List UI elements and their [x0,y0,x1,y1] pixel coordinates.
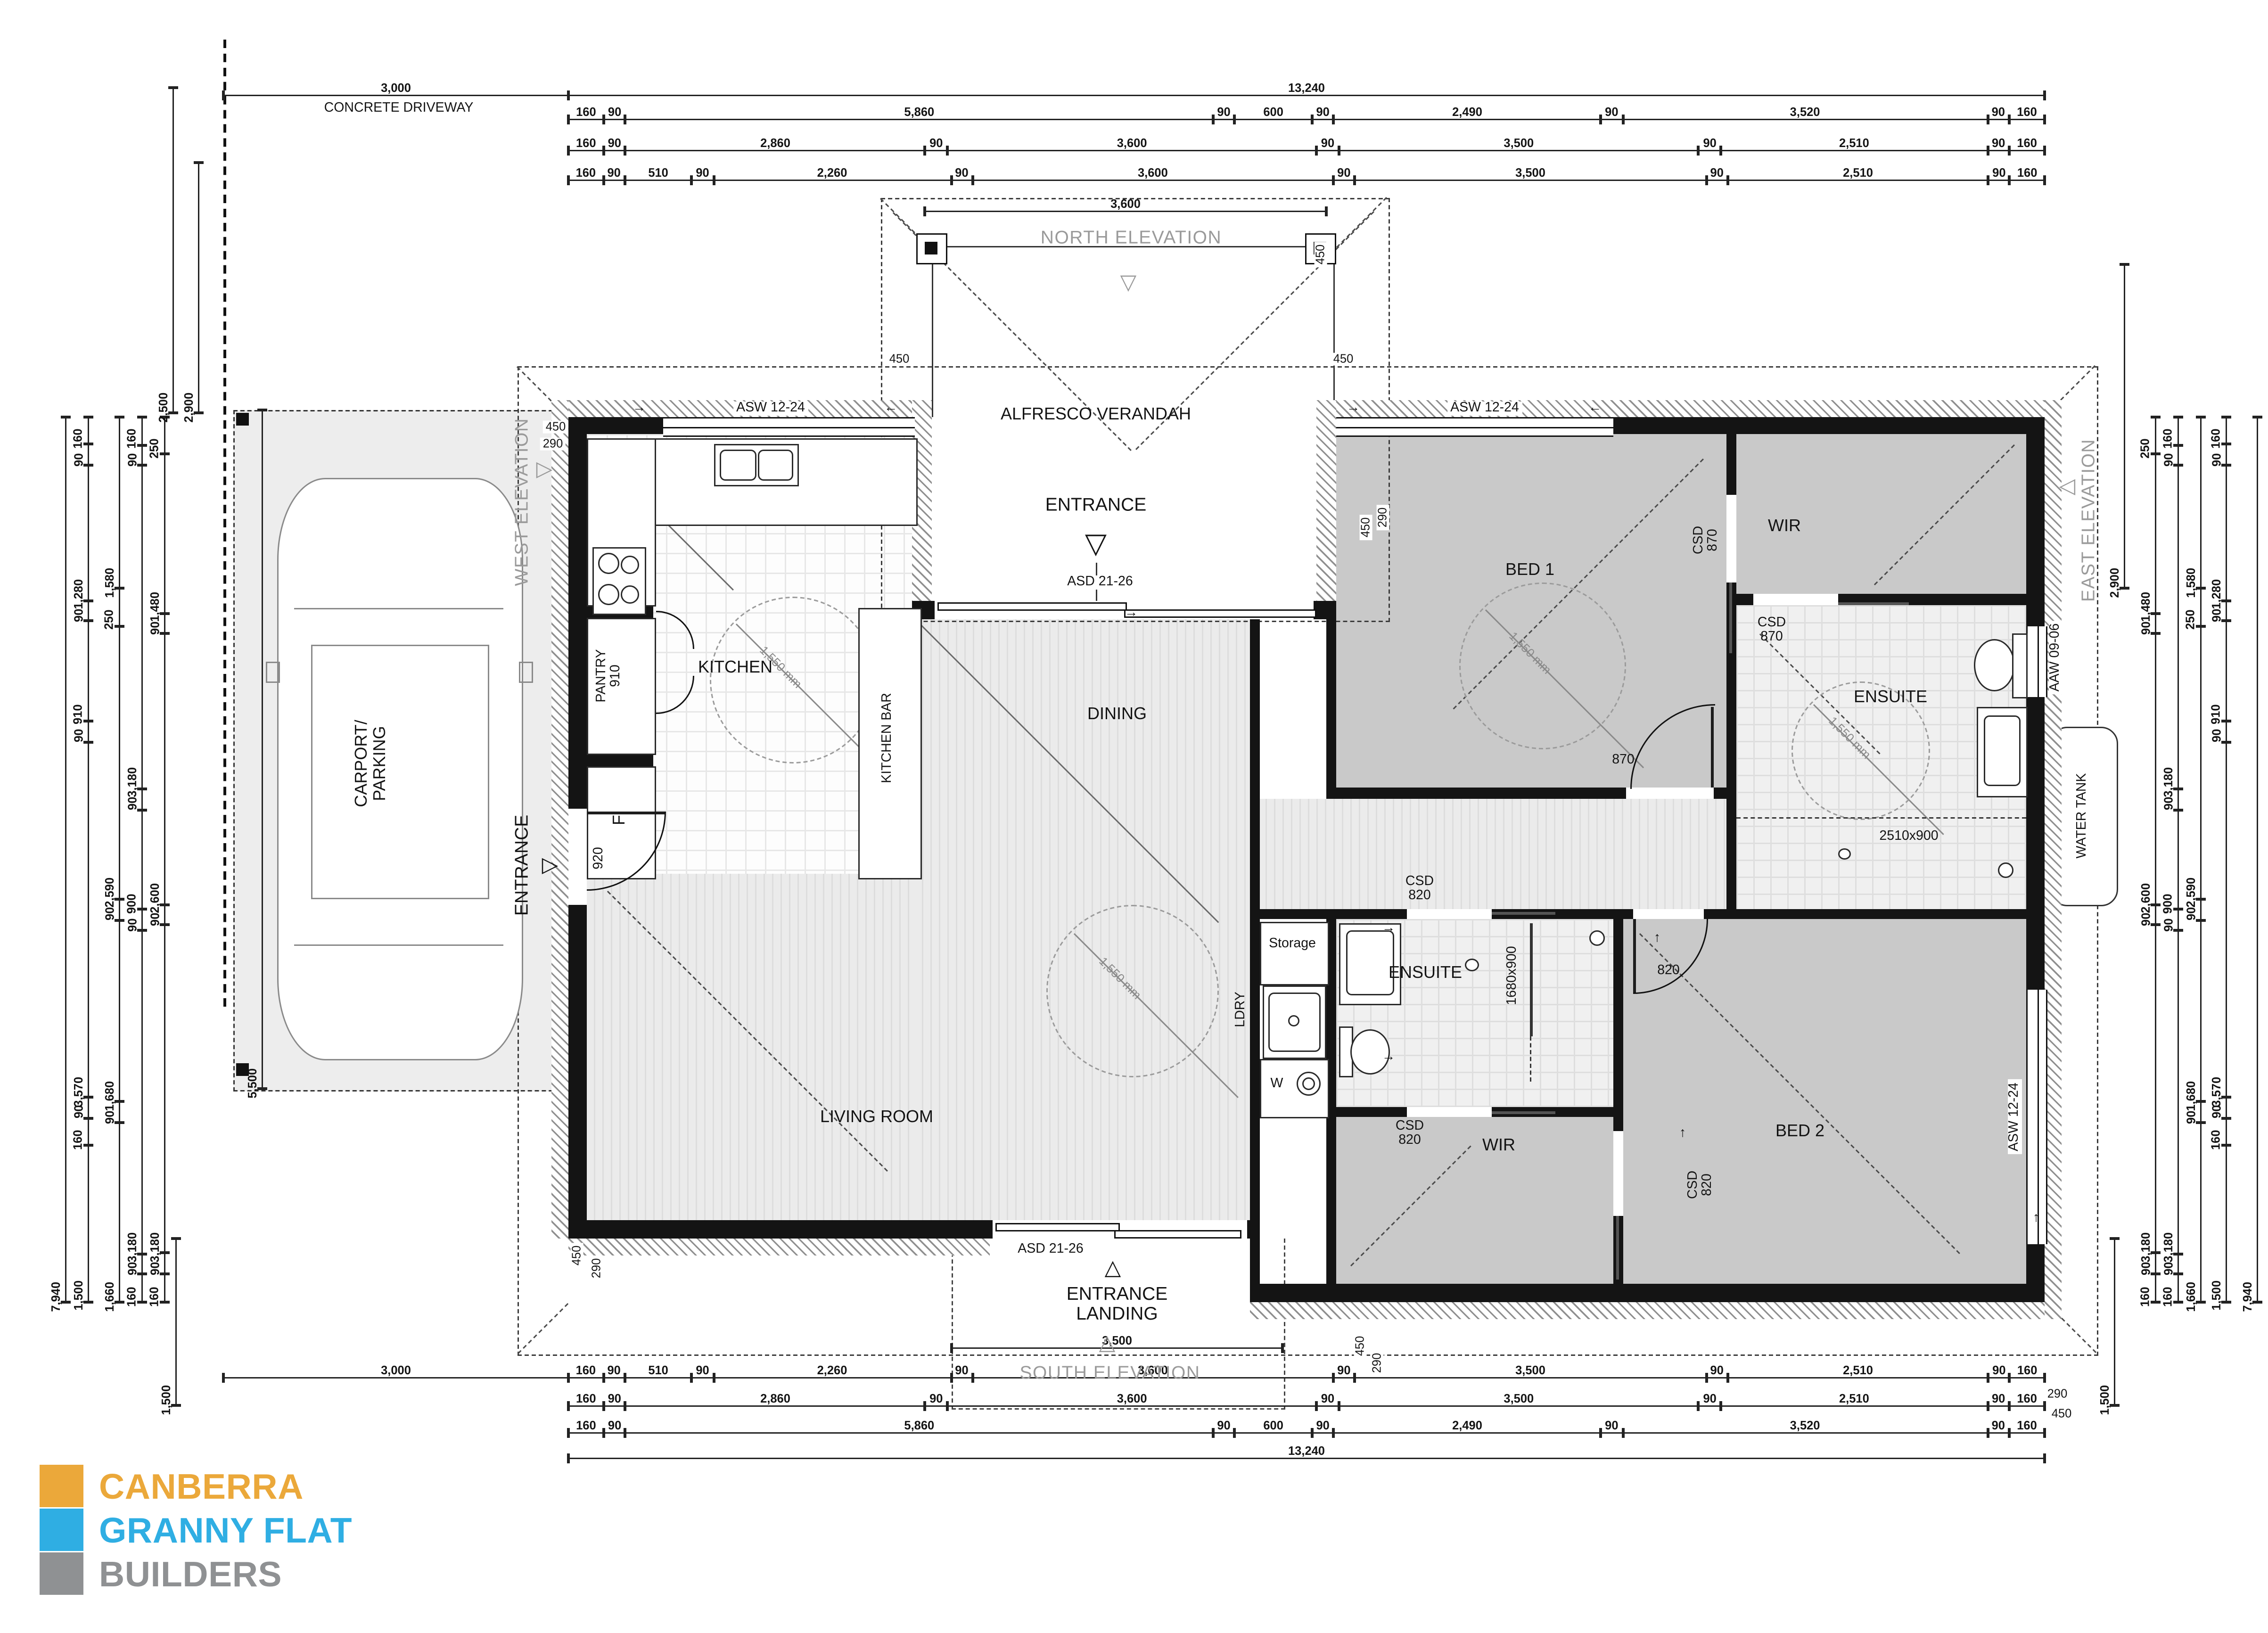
dimension-label: 13,240 [1288,82,1325,94]
dimension-label: 90 [104,1110,116,1123]
logo-text-granny-flat: GRANNY FLAT [99,1511,352,1552]
dimension-row-r_col4: 2501,480902,600903,18090160 [2138,417,2156,1302]
kitchen-window-arrow-right: ← [884,402,898,416]
wir-bed2-csd-label: CSD820 [1687,1171,1715,1199]
dimension-row-r_landing: 1,500 [2097,1239,2115,1405]
kitchen-window-label: ASW 12-24 [733,402,808,416]
dimension-row-r_col3: 160903,18090900903,18090160 [2161,417,2179,1302]
eave-450-verandah-right: 450 [1331,353,1356,366]
wir-ensuite-csd-pocket [1838,602,1909,605]
dimension-label: 90 [126,1262,139,1275]
eave-450-verandah-left: 450 [887,353,912,366]
dimension-label: 1,500 [73,1281,85,1311]
dimension-label: 90 [1605,106,1618,118]
bed1-label: BED 1 [1505,561,1554,579]
dimension-label: 90 [608,1419,621,1431]
dimension-label: 1,660 [104,1281,116,1311]
dimension-label: 90 [2185,907,2197,920]
eave-450-ne: 450 [1360,515,1372,541]
south-elevation-label: SOUTH ELEVATION [1020,1363,1200,1383]
hatch-north-right [1316,400,2045,417]
logo-text-builders: BUILDERS [99,1555,282,1596]
dimension-label: 90 [2210,452,2223,466]
dimension-label: 5,860 [904,106,934,118]
dimension-label: 1,500 [2210,1281,2223,1311]
verandah-edge-left [932,246,934,417]
dimension-row-b_overall: 13,240 [568,1441,2045,1459]
dimension-label: 160 [576,137,596,149]
entrance-door-gap [568,809,587,905]
water-tank-label: WATER TANK [2076,773,2090,858]
washer-drum-inner [1302,1077,1315,1090]
dimension-label: 90 [104,907,116,920]
bed2-door-arrow: ↑ [1654,932,1660,946]
wall-wir-bed2 [1613,919,1623,1284]
dimension-label: 2,510 [1843,1364,1873,1376]
bed1-window-label: ASW 12-24 [1447,402,1522,416]
bed1-window-arrow-right: ← [1588,402,1602,416]
living-asd-panel-2 [1114,1230,1241,1239]
cooktop-burner-1 [598,553,619,574]
ensuite2-csd-top-gap [1407,909,1492,919]
floor-plan-canvas: 1,550 mm 1,550 mm 1,550 mm 1,550 mm KITC… [0,0,2268,1633]
storage-shelf [1260,922,1329,985]
ensuite2-label: ENSUITE [1389,964,1462,982]
dimension-label: 90 [1710,1364,1724,1376]
dimension-label: 2,500 [157,392,170,422]
wall-living-east [1250,619,1260,1302]
hatch-west [551,400,568,1239]
cooktop-burner-4 [621,585,639,604]
dimension-label: 3,600 [1138,166,1168,179]
dimension-label: 600 [1263,1419,1283,1431]
dimension-label: 3,000 [381,82,411,94]
dimension-label: 90 [1992,106,2005,118]
dimension-label: 160 [2140,1286,2152,1306]
dimension-label: 160 [126,1286,139,1306]
wall-east-3 [2026,1244,2045,1302]
logo-square-gray [40,1552,83,1595]
ensuite2-floor-drain [1465,959,1479,971]
dimension-row-b_land: 3,500 [952,1330,1282,1349]
dimension-label: 3,600 [1110,197,1141,210]
logo-text-canberra: CANBERRA [99,1468,304,1509]
bed2-window-asw [2026,990,2047,1244]
dimension-label: 90 [608,106,621,118]
dimension-label: 160 [2017,1392,2037,1404]
ensuite-main-basin [1984,715,2021,786]
dimension-row-l_landing: 1,500 [158,1239,177,1405]
dimension-label: 3,500 [1515,1364,1545,1376]
cooktop-burner-3 [598,584,619,605]
ensuite-main-shower-head [1998,862,2013,878]
dimension-row-r_col2: 1,5802502,590901,680901,660 [2183,417,2202,1302]
east-elevation-arrow: ◁ [2059,476,2076,497]
dimension-label: 3,600 [1117,137,1147,149]
dimension-label: 510 [648,166,668,179]
dimension-label: 90 [73,608,85,622]
dimension-label: 2,490 [1452,1419,1482,1431]
dimension-label: 90 [1321,1392,1334,1404]
ensuite2-shower-screen-dashed [1530,1036,1531,1082]
verandah-post-left [916,233,947,264]
dimension-label: 160 [2017,166,2038,179]
bed1-csd-label: CSD870 [1693,526,1721,554]
dimension-row-b_row2: 160902,860903,600903,500902,51090160 [568,1388,2045,1407]
dimension-row-b_row3: 160905,86090600902,490903,52090160 [568,1415,2045,1434]
eave-450-se: 450 [2049,1408,2075,1420]
ensuite2-csd-bottom-gap [1407,1107,1492,1117]
dimension-label: 160 [576,166,596,179]
north-elevation-label: NORTH ELEVATION [1041,228,1222,247]
ensuite2-csd-bottom-label: CSD820 [1396,1120,1424,1148]
dimension-label: 90 [1992,1364,2005,1376]
ensuite2-shower-screen [1530,923,1532,1036]
verandah-edge-right [1333,246,1335,417]
dimension-label: 90 [126,797,139,810]
dimension-label: 5,500 [247,1067,259,1098]
dimension-row-l_col1: 160901,28090910903,570901601,500 [71,417,89,1302]
bed1-door-gap [1626,788,1714,799]
ensuite2-csd-top-pocket [1492,912,1555,914]
ensuite2-shower-head [1589,930,1605,946]
bed2-door-gap [1633,909,1704,919]
dimension-label: 2,260 [817,166,847,179]
dimension-label: 160 [576,1392,596,1404]
wall-west-lower [568,905,587,1239]
entrance-door-width-label: 920 [592,847,607,870]
north-elevation-arrow: ▽ [1120,272,1137,294]
ensuite2-csd-top-label: CSD820 [1405,875,1434,903]
dimension-label: 3,000 [381,1364,411,1376]
dimension-row-t_ver: 3,600 [925,194,1326,212]
storage-label: Storage [1269,937,1316,952]
bed2-label: BED 2 [1775,1122,1824,1140]
dimension-label: 160 [2162,1286,2175,1306]
bed1-csd-pocket [1729,583,1732,653]
dimension-label: 3,600 [1117,1392,1147,1404]
washer-label: W [1271,1077,1283,1091]
dimension-label: 2,260 [817,1364,847,1376]
ensuite2-csd-top-arrow: → [1382,922,1396,936]
dimension-label: 90 [126,453,139,466]
dimension-label: 90 [73,1106,85,1119]
bed1-window-arrow-left: → [1347,402,1360,416]
eave-450-sw: 450 [571,1243,583,1269]
bed1-csd-gap [1726,495,1736,583]
verandah-label: ALFRESCO VERANDAH [1001,405,1191,423]
pantry-label: PANTRY910 [595,649,624,702]
dimension-label: 1,500 [2099,1384,2111,1414]
dimension-label: 90 [2210,729,2223,742]
dimension-row-l_col4: 2501,480902,600903,18090160 [147,417,165,1302]
dimension-label: 90 [1321,137,1334,149]
verandah-asd-label: ASD 21-26 [1064,575,1135,590]
dimension-label: 90 [2162,453,2175,466]
wir-bottom-label: WIR [1482,1136,1515,1154]
dimension-row-t_row1: 160905,86090600902,490903,52090160 [568,102,2045,120]
bed1-window-asw [1336,417,1613,437]
dimension-label: 5,860 [904,1419,934,1431]
wall-north-2 [1613,417,2045,434]
ensuite2-csd-bottom-arrow: → [1382,1050,1396,1065]
dimension-row-b_row1: 16090510902,260903,600903,500902,5109016… [568,1360,2045,1379]
dimension-label: 90 [1710,166,1724,179]
dimension-label: 90 [1217,106,1230,118]
dimension-row-l_carport: 5,500 [245,410,263,1089]
landing-arrow: △ [1105,1258,1121,1279]
laundry-tub-drain [1288,1015,1299,1026]
dimension-label: 13,240 [1288,1444,1325,1457]
dimension-label: 90 [696,1364,709,1376]
dimension-label: 160 [576,1364,596,1376]
verandah-asd-panel-2 [1124,609,1316,618]
dimension-row-t_overall: 13,240 [568,78,2045,96]
living-asd-label: ASD 21-26 [1015,1243,1086,1257]
dimension-label: 160 [2017,1419,2037,1431]
kitchen-window-arrow-left: → [633,402,646,416]
dimension-label: 90 [2162,797,2175,810]
dimension-row-r_col1: 160901,28090910903,570901601,500 [2209,417,2227,1302]
landing-label: ENTRANCELANDING [1067,1284,1168,1323]
dimension-label: 2,510 [1843,166,1873,179]
dimension-label: 90 [149,912,161,926]
wall-east-2 [2026,697,2045,990]
bed2-door-label: 820 [1657,964,1680,978]
car-cabin [311,645,489,899]
dimension-label: 90 [2210,608,2223,622]
eave-450-nw: 450 [543,421,569,434]
dimension-label: 90 [2140,912,2152,926]
bed2-window-label: ASW 12-24 [2008,1080,2022,1154]
car-mirror-left [266,662,280,683]
dimension-label: 90 [1316,1419,1329,1431]
bed1-door-label: 870 [1612,754,1635,768]
south-elevation-arrow: △ [1099,1333,1116,1354]
dimension-label: 90 [608,137,621,149]
dimension-row-t_drive: 3,000 [223,78,568,96]
ensuite2-csd-bottom-pocket [1492,1111,1555,1114]
car-rear-line [294,944,503,946]
kitchen-bar-label: KITCHEN BAR [881,693,895,783]
dimension-label: 90 [2162,1262,2175,1275]
ensuite-main-shower-screen [1736,817,2026,819]
dimension-label: 90 [608,166,621,179]
ensuite-main-toilet-bowl [1974,639,2015,691]
kitchen-label: KITCHEN [698,658,772,676]
eave-290-sw: 290 [591,1256,603,1281]
verandah-asd-arrow: → [1125,607,1138,621]
dimension-label: 90 [955,1364,968,1376]
dimension-label: 3,500 [1504,1392,1534,1404]
ensuite-csd-label: CSD870 [1758,616,1786,645]
dimension-label: 3,500 [1515,166,1545,179]
dimension-label: 90 [126,918,139,931]
living-asd-panel-1 [995,1223,1120,1231]
laundry-label: LDRY [1234,992,1249,1027]
dimension-label: 90 [1992,1419,2005,1431]
dimension-label: 2,490 [1452,106,1482,118]
cooktop-burner-2 [621,556,639,574]
ensuite-main-toilet-tank [2012,633,2028,698]
eave-450-verandah-roof: 450 [1315,242,1327,268]
dimension-label: 90 [1217,1419,1230,1431]
dimension-label: 90 [1605,1419,1618,1431]
dimension-label: 160 [2017,106,2037,118]
wir-top-label: WIR [1768,517,1801,535]
verandah-entrance-label: ENTRANCE [1045,495,1147,515]
dimension-label: 160 [576,1419,596,1431]
fridge-label: F [610,815,628,825]
dimension-label: 2,860 [760,137,790,149]
dimension-label: 90 [2185,1110,2197,1123]
wir-bed2-csd-arrow: ↑ [1679,1127,1686,1141]
car-mirror-right [519,662,533,683]
west-entrance-arrow: ▷ [542,855,559,876]
shower-main-label: 2510x900 [1879,830,1938,844]
dimension-label: 7,940 [2242,1281,2254,1311]
dimension-label: 2,860 [760,1392,790,1404]
ensuite-csd-arrow: ↓ [1730,624,1737,638]
eave-290-se: 290 [2045,1388,2071,1401]
dimension-label: 3,500 [1504,137,1534,149]
dimension-label: 90 [955,166,968,179]
dimension-label: 90 [1337,1364,1350,1376]
dimension-label: 3,520 [1790,106,1820,118]
wir-bed2-csd-gap [1613,1131,1623,1216]
west-elevation-arrow: ▷ [536,459,553,480]
logo-square-blue [40,1509,83,1551]
dimension-row-l_drive1: 2,500 [156,88,174,413]
logo-square-orange [40,1465,83,1507]
dimension-label: 600 [1263,106,1283,118]
eave-290-landing: 290 [1371,1350,1384,1376]
dimension-row-b_drive: 3,000 [223,1360,568,1379]
dimension-label: 90 [2162,918,2175,931]
dimension-row-t_row3: 16090510902,260903,600903,500902,5109016… [568,163,2045,181]
dimension-label: 1,660 [2185,1281,2197,1311]
kitchen-sink-bowl-1 [720,450,756,481]
wall-bed1-west [1326,609,1336,799]
west-entrance-label: ENTRANCE [512,815,532,916]
wall-south-wing [1250,1284,2045,1302]
dimension-label: 2,900 [183,392,195,422]
dimension-label: 160 [2017,137,2037,149]
west-elevation-label: WEST ELEVATION [512,418,532,586]
hatch-verandah-right-wall [1316,400,1336,609]
dimension-label: 90 [929,1392,943,1404]
wir-ensuite-csd-gap [1753,594,1838,605]
dimension-label: 160 [576,106,596,118]
hatch-south-living [568,1239,990,1256]
dimension-label: 2,900 [2109,567,2121,597]
ensuite-window-aaw [2026,626,2047,697]
car-windshield-line [294,608,503,609]
dimension-label: 90 [149,621,161,634]
dimension-row-l_drive2: 2,900 [181,163,199,413]
living-label: LIVING ROOM [820,1108,933,1126]
wir-bed2-csd-pocket [1616,1216,1619,1280]
dimension-row-l_col2: 1,5802502,590901,680901,660 [102,417,120,1302]
dimension-label: 90 [1992,1392,2005,1404]
east-elevation-label: EAST ELEVATION [2079,439,2098,602]
dimension-label: 90 [608,1392,621,1404]
eave-450-landing: 450 [1354,1333,1367,1359]
dimension-row-l_col3: 160903,18090900903,18090160 [124,417,143,1302]
ensuite-main-shower-drain [1838,848,1851,860]
dimension-label: 90 [608,1364,621,1376]
dimension-row-l_overall: 7,940 [48,417,66,1302]
dimension-label: 2,510 [1839,1392,1869,1404]
verandah-asd-panel-1 [937,602,1127,611]
dimension-label: 90 [2210,1106,2223,1119]
dimension-row-r_overall: 7,940 [2240,417,2258,1302]
kitchen-window-asw [663,417,915,437]
dimension-label: 510 [648,1364,668,1376]
dimension-label: 1,500 [160,1384,173,1414]
dimension-label: 90 [1703,137,1716,149]
eave-290-ne: 290 [1377,505,1389,531]
dimension-label: 90 [1316,106,1329,118]
dimension-label: 90 [2140,621,2152,634]
carport-label: CARPORT/PARKING [353,720,388,807]
driveway-label: CONCRETE DRIVEWAY [324,102,474,116]
dimension-label: 90 [1992,166,2005,179]
ensuite-main-label: ENSUITE [1854,688,1927,706]
dining-label: DINING [1087,705,1147,723]
wall-west-upper [568,417,587,809]
dimension-label: 90 [696,166,709,179]
eave-290-nw: 290 [540,438,566,451]
dimension-label: 160 [2017,1364,2038,1376]
ensuite-aaw-label: AAW 09-06 [2049,621,2063,695]
dimension-row-t_row2: 160902,860903,600903,500902,51090160 [568,133,2045,151]
ensuite2-basin [1346,930,1394,995]
dimension-label: 90 [2140,1262,2152,1275]
dimension-label: 90 [1337,166,1350,179]
hatch-south-wing [1250,1302,2045,1319]
dimension-label: 90 [929,137,943,149]
wall-east-1 [2026,417,2045,626]
dimension-label: 3,520 [1790,1419,1820,1431]
dimension-label: 90 [73,452,85,466]
verandah-entrance-arrow: ▽ [1085,530,1107,558]
bed2-window-arrow: ↑ [2033,1212,2039,1226]
dimension-label: 90 [73,729,85,742]
property-boundary-line [223,40,226,1007]
dimension-row-r_top: 2,900 [2107,264,2125,588]
shower-ensuite2-label: 1680x900 [1506,946,1520,1005]
dimension-label: 90 [1703,1392,1716,1404]
dimension-label: 90 [1992,137,2005,149]
dimension-label: 2,510 [1839,137,1869,149]
dimension-label: 7,940 [50,1281,62,1311]
wall-south-living [568,1220,993,1239]
kitchen-sink-bowl-2 [758,450,793,481]
